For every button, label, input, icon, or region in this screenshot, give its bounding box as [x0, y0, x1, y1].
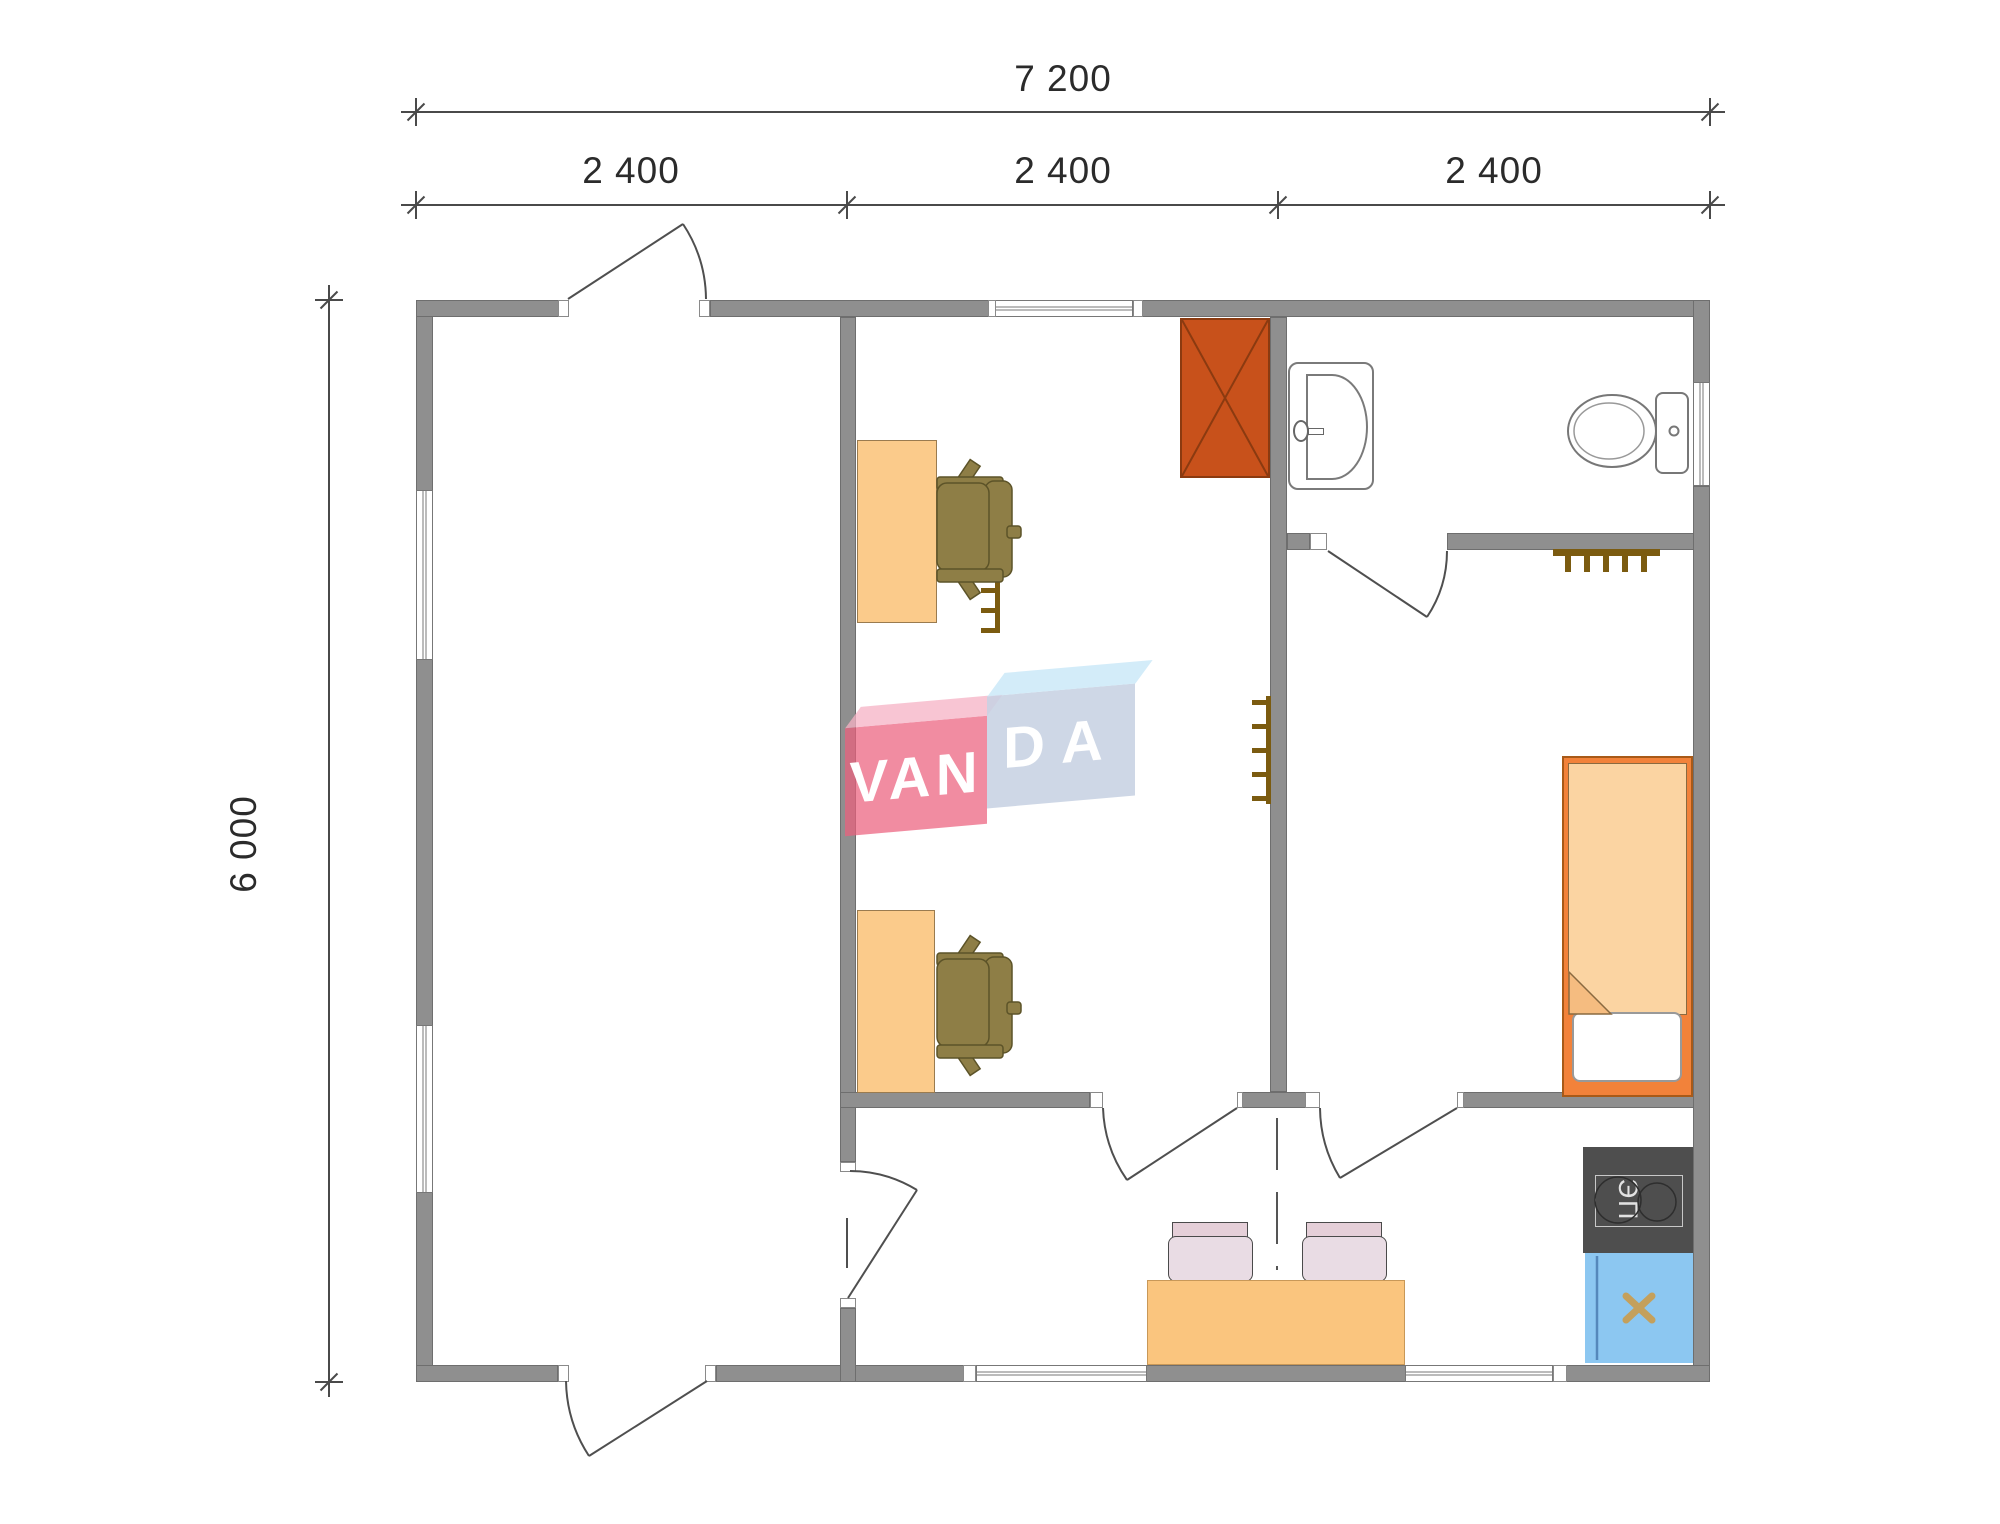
door-jamb	[705, 1365, 716, 1382]
wall-exterior-top-b	[710, 300, 996, 317]
door-jamb	[699, 300, 710, 317]
radiator-office-tooth	[1252, 700, 1267, 705]
door-bathroom	[1328, 551, 1447, 617]
door-left-room-interior	[847, 1171, 917, 1298]
door-jamb	[840, 1298, 856, 1308]
door-bedroom	[1320, 1108, 1457, 1178]
window-left-lower	[416, 1025, 433, 1193]
wardrobe	[1180, 318, 1270, 478]
dimension-line-total-width	[401, 111, 1725, 113]
wall-interior-left-room-b	[840, 1308, 856, 1382]
dimension-label-segment-2: 2 400	[983, 150, 1143, 192]
window-left-upper	[416, 490, 433, 660]
door-office	[1103, 1108, 1237, 1180]
radiator-hall-tooth	[981, 608, 996, 613]
window-bottom-left	[976, 1365, 1147, 1382]
wall-bathroom-bottom-a	[1287, 533, 1310, 550]
radiator-hall-tooth	[981, 568, 996, 573]
radiator-hall-tooth	[981, 628, 996, 633]
wall-exterior-top-c	[1133, 300, 1710, 317]
door-jamb	[1553, 1365, 1567, 1382]
wall-office-bottom-a	[840, 1092, 1090, 1108]
wall-exterior-right-b	[1693, 486, 1710, 1382]
door-jamb	[558, 1365, 569, 1382]
door-jamb	[558, 300, 569, 317]
wall-exterior-right-a	[1693, 300, 1710, 384]
radiator-bedroom-tooth	[1565, 556, 1571, 572]
wall-bathroom-bottom-b	[1447, 533, 1694, 550]
toilet	[1568, 393, 1688, 473]
office-desk-bottom	[857, 910, 935, 1093]
wall-exterior-top-a	[416, 300, 561, 317]
office-chair-top	[937, 460, 1021, 600]
dining-chair-seat	[1168, 1236, 1253, 1282]
door-jamb	[1237, 1092, 1243, 1108]
bathroom-sink-tap-stem	[1308, 428, 1324, 435]
logo-text-da: DA	[987, 704, 1135, 784]
door-jamb	[840, 1162, 856, 1172]
wall-exterior-left	[416, 300, 433, 1382]
stove-label: ЭП	[1606, 1178, 1650, 1222]
floor-plan: 7 200 2 400 2 400 2 400 6 000	[0, 0, 2000, 1524]
door-jamb	[1457, 1092, 1464, 1108]
radiator-bedroom-tooth	[1584, 556, 1590, 572]
radiator-office-tooth	[1252, 748, 1267, 753]
radiator-hall-tooth	[981, 548, 996, 553]
office-desk-top	[857, 440, 937, 623]
window-bottom-right	[1405, 1365, 1553, 1382]
bathroom-sink-tap	[1293, 420, 1309, 442]
dimension-label-total-width: 7 200	[983, 58, 1143, 100]
radiator-office-tooth	[1252, 796, 1267, 801]
window-right-bathroom	[1693, 382, 1710, 486]
radiator-bedroom-tooth	[1603, 556, 1609, 572]
kitchen-sink	[1585, 1253, 1693, 1363]
window-top-office	[995, 300, 1133, 317]
door-jamb	[988, 300, 996, 317]
door-jamb	[963, 1365, 976, 1382]
dimension-line-height	[328, 285, 330, 1397]
logo-text-van: VAN	[845, 738, 987, 817]
door-jamb	[1305, 1092, 1320, 1108]
wall-exterior-bottom-a	[416, 1365, 558, 1382]
dimension-label-segment-3: 2 400	[1414, 150, 1574, 192]
radiator-bedroom-bar	[1553, 549, 1660, 556]
radiator-hall-tooth	[981, 588, 996, 593]
door-jamb	[1310, 533, 1327, 550]
office-chair-bottom	[937, 936, 1021, 1076]
bed-pillow	[1572, 1012, 1682, 1082]
logo-block-pink: VAN	[845, 716, 987, 836]
door-bottom-exterior	[566, 1381, 707, 1456]
logo-block-blue-top-face	[987, 660, 1152, 696]
radiator-bedroom-tooth	[1641, 556, 1647, 572]
dining-table	[1147, 1280, 1405, 1365]
door-jamb	[1090, 1092, 1103, 1108]
dimension-label-height: 6 000	[223, 764, 265, 924]
dimension-label-segment-1: 2 400	[551, 150, 711, 192]
dimension-line-segments	[401, 204, 1725, 206]
radiator-office-tooth	[1252, 724, 1267, 729]
radiator-office-tooth	[1252, 772, 1267, 777]
wall-interior-office-bedroom	[1270, 317, 1287, 1092]
radiator-bedroom-tooth	[1622, 556, 1628, 572]
dining-chair-seat	[1302, 1236, 1387, 1282]
door-jamb	[1133, 300, 1143, 317]
door-top-left-exterior	[568, 224, 706, 299]
logo-block-blue: DA	[987, 684, 1135, 809]
bed-blanket	[1568, 763, 1687, 1015]
logo-block-pink-top-face	[845, 694, 1003, 728]
